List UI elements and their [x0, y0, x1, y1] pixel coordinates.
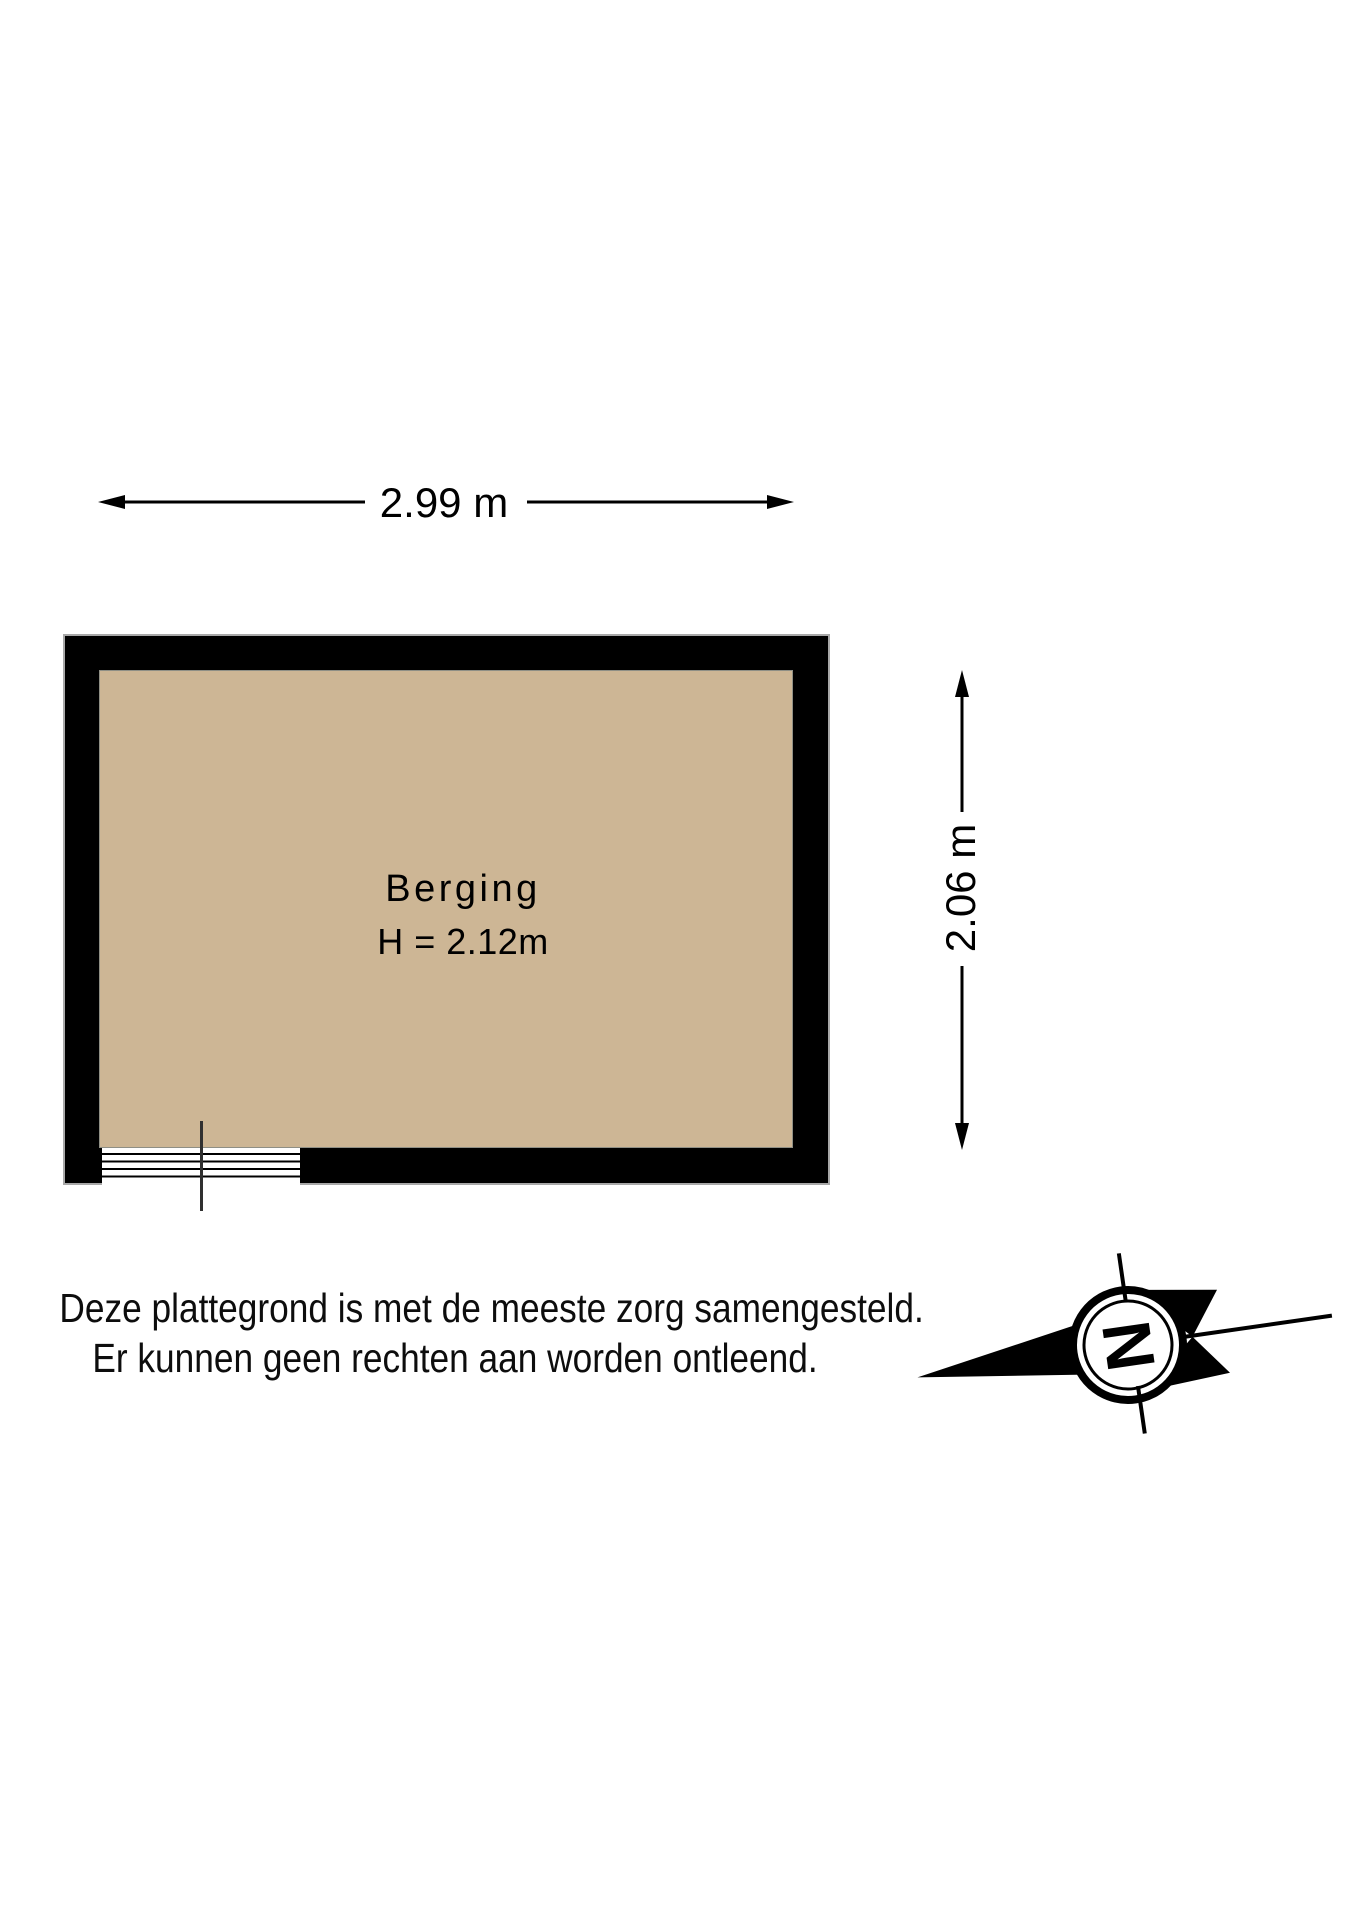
- disclaimer-line-1: Deze plattegrond is met de meeste zorg s…: [59, 1283, 850, 1333]
- disclaimer-line-2: Er kunnen geen rechten aan worden ontlee…: [59, 1333, 850, 1383]
- height-dimension-label: 2.06 m: [939, 788, 983, 988]
- width-dimension-label: 2.99 m: [344, 481, 544, 525]
- room-name-label: Berging: [385, 868, 540, 911]
- room-ceiling-height-label: H = 2.12m: [377, 921, 549, 963]
- room-label-group: Berging H = 2.12m: [116, 676, 810, 1154]
- disclaimer-text: Deze plattegrond is met de meeste zorg s…: [0, 1283, 915, 1383]
- floorplan-page: 2.99 m Berging H = 2.12m 2.06 m Deze pla…: [0, 0, 1358, 1920]
- north-compass-icon: N: [898, 1240, 1358, 1450]
